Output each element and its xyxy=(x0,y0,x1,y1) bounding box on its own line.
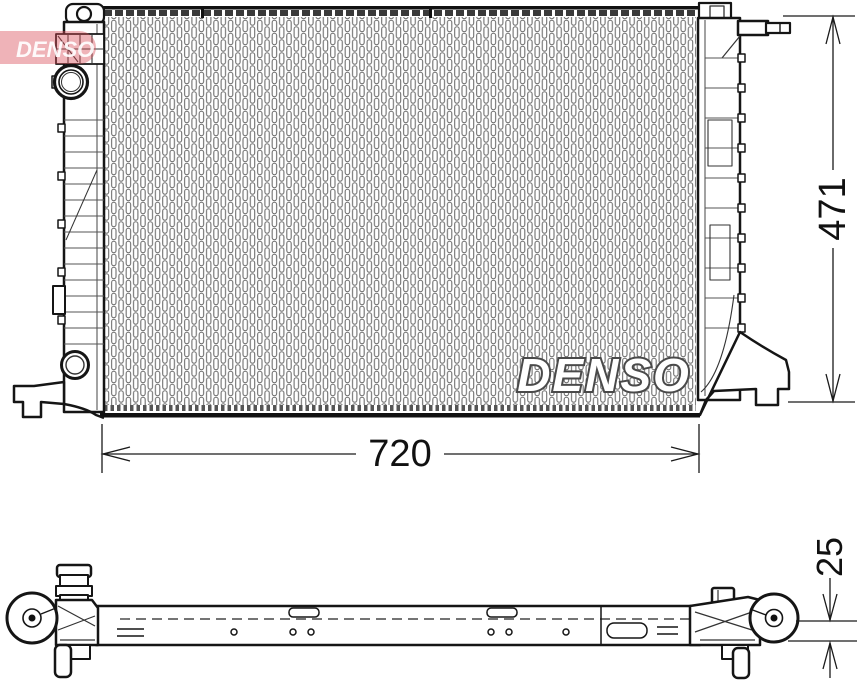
profile-top-tab xyxy=(289,608,319,617)
left-bottom-foot xyxy=(14,382,64,417)
profile-right-end xyxy=(690,588,798,678)
dimension-width: 720 xyxy=(102,424,699,475)
core-top-tick xyxy=(429,9,432,18)
right-disc-center xyxy=(771,615,778,622)
dimension-thickness: 25 xyxy=(788,537,857,678)
denso-logo-text: DENSO xyxy=(16,37,94,62)
core-top-edge xyxy=(100,6,700,10)
thickness-dim-label: 25 xyxy=(809,537,850,577)
core-top-tick xyxy=(201,9,204,18)
left-tank xyxy=(14,4,104,418)
left-mid-tab xyxy=(53,286,65,314)
front-view: DENSO xyxy=(14,3,790,418)
profile-left-end xyxy=(7,565,98,677)
outlet-pipe-tip xyxy=(766,23,790,33)
denso-logo: DENSO xyxy=(0,31,96,64)
core-fin-pattern xyxy=(104,17,696,405)
drawing-svg: DENSO DENSO 471 720 xyxy=(0,0,857,690)
filler-neck-ring xyxy=(59,70,83,94)
radiator-technical-drawing: DENSO DENSO 471 720 xyxy=(0,0,857,690)
width-dim-label: 720 xyxy=(368,433,431,475)
profile-top-tab xyxy=(487,608,517,617)
left-foot-peg xyxy=(55,645,71,677)
right-tank xyxy=(698,3,790,415)
outlet-pipe-base xyxy=(738,21,768,35)
denso-watermark: DENSO xyxy=(517,349,691,401)
right-foot-peg xyxy=(733,648,749,678)
height-dim-label: 471 xyxy=(812,177,854,240)
dimension-height: 471 xyxy=(783,16,855,402)
left-disc-center xyxy=(29,615,36,622)
core-bottom-edge xyxy=(100,413,700,418)
bottom-profile-view xyxy=(7,565,798,678)
left-bracket-hole xyxy=(77,7,91,21)
